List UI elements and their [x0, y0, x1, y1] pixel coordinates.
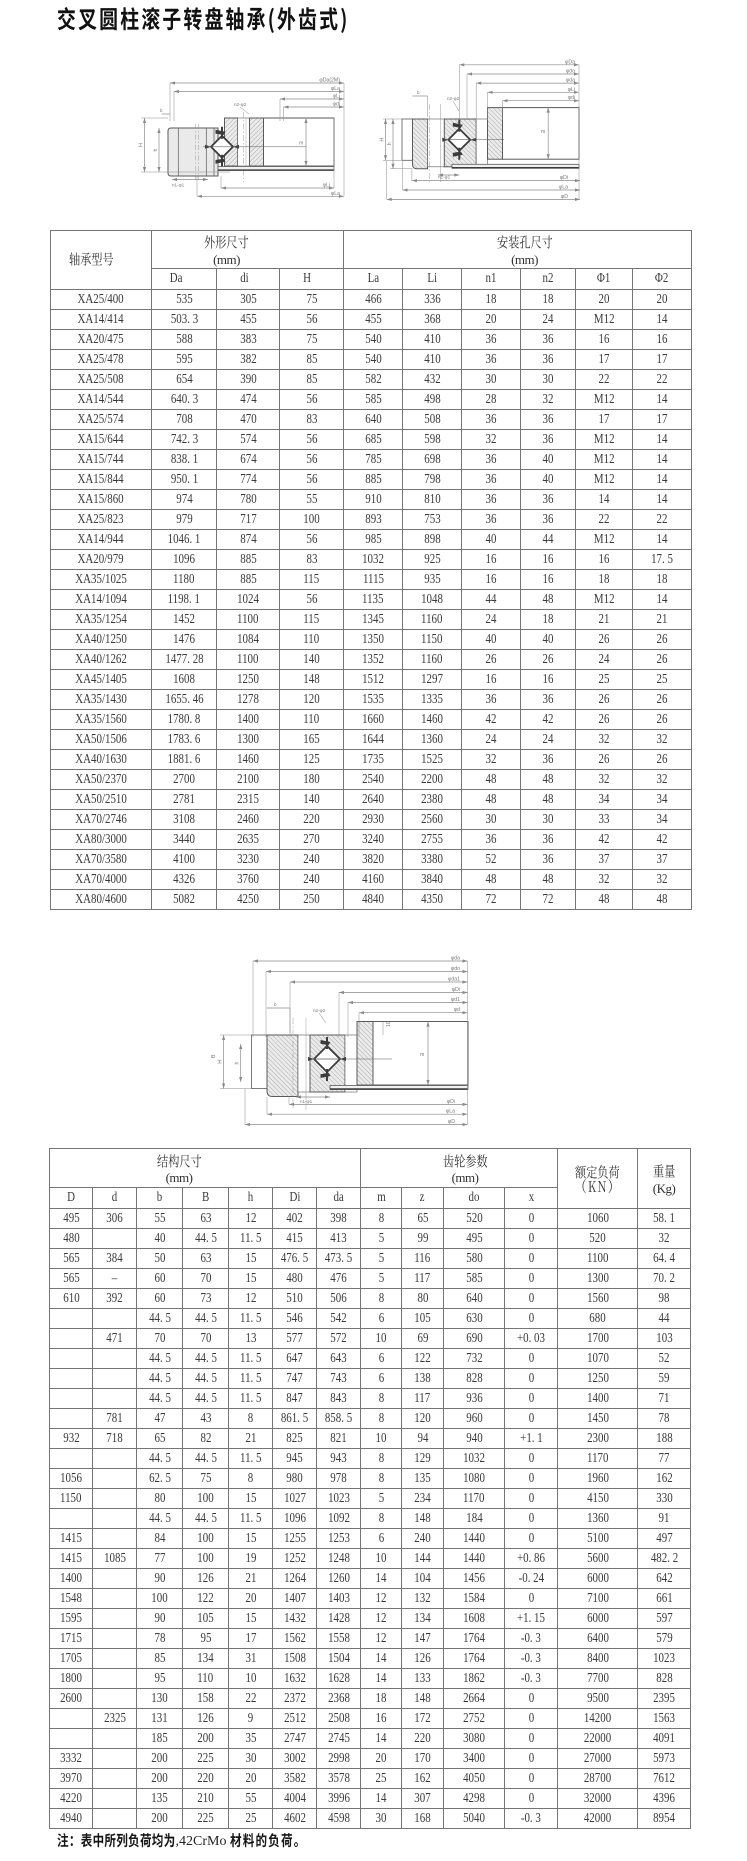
- svg-text:φda: φda: [451, 956, 460, 962]
- svg-text:m: m: [420, 1052, 424, 1058]
- svg-text:φdi: φdi: [333, 102, 340, 108]
- svg-text:φda: φda: [566, 78, 575, 84]
- svg-text:φLa: φLa: [559, 185, 568, 191]
- svg-text:φd1: φd1: [451, 997, 460, 1003]
- svg-text:φLi: φLi: [323, 183, 330, 189]
- svg-text:m: m: [541, 129, 545, 135]
- svg-text:φLa: φLa: [331, 86, 340, 92]
- svg-text:H: H: [380, 138, 386, 142]
- svg-text:φLi: φLi: [568, 87, 575, 93]
- svg-text:φLi: φLi: [333, 94, 340, 100]
- svg-text:φdi: φdi: [568, 95, 575, 101]
- svg-text:φd: φd: [454, 1007, 460, 1013]
- svg-text:φda1: φda1: [448, 977, 460, 983]
- svg-text:10: 10: [386, 1021, 392, 1027]
- svg-text:h: h: [153, 148, 159, 151]
- svg-text:b: b: [417, 90, 420, 95]
- svg-text:φLa: φLa: [446, 1109, 455, 1115]
- svg-text:n1-φ1: n1-φ1: [172, 183, 185, 188]
- svg-text:φD: φD: [561, 194, 568, 200]
- svg-text:H: H: [139, 143, 145, 147]
- svg-text:φDi: φDi: [447, 1099, 455, 1105]
- svg-text:n1-φ1: n1-φ1: [438, 175, 451, 180]
- svg-text:φDa(2M): φDa(2M): [319, 78, 340, 84]
- svg-text:φD: φD: [448, 1119, 455, 1125]
- svg-text:φLa: φLa: [331, 191, 340, 197]
- svg-text:h: h: [235, 1061, 241, 1064]
- svg-text:H: H: [218, 1060, 224, 1064]
- svg-text:b: b: [274, 1002, 277, 1007]
- svg-text:n1-φ1: n1-φ1: [300, 1099, 313, 1104]
- svg-text:φDa: φDa: [565, 59, 575, 65]
- svg-text:φdo: φdo: [451, 966, 460, 972]
- svg-text:φdo: φdo: [566, 69, 575, 75]
- svg-text:n2-φ2: n2-φ2: [313, 1008, 326, 1013]
- svg-text:φDi: φDi: [560, 175, 568, 181]
- svg-text:φDi: φDi: [452, 987, 460, 993]
- svg-text:h: h: [387, 142, 393, 145]
- svg-text:m: m: [299, 141, 303, 147]
- svg-text:n2-φ2: n2-φ2: [234, 102, 247, 107]
- svg-text:n2-φ2: n2-φ2: [447, 96, 460, 101]
- svg-text:b: b: [160, 108, 163, 113]
- svg-text:B: B: [211, 1054, 217, 1058]
